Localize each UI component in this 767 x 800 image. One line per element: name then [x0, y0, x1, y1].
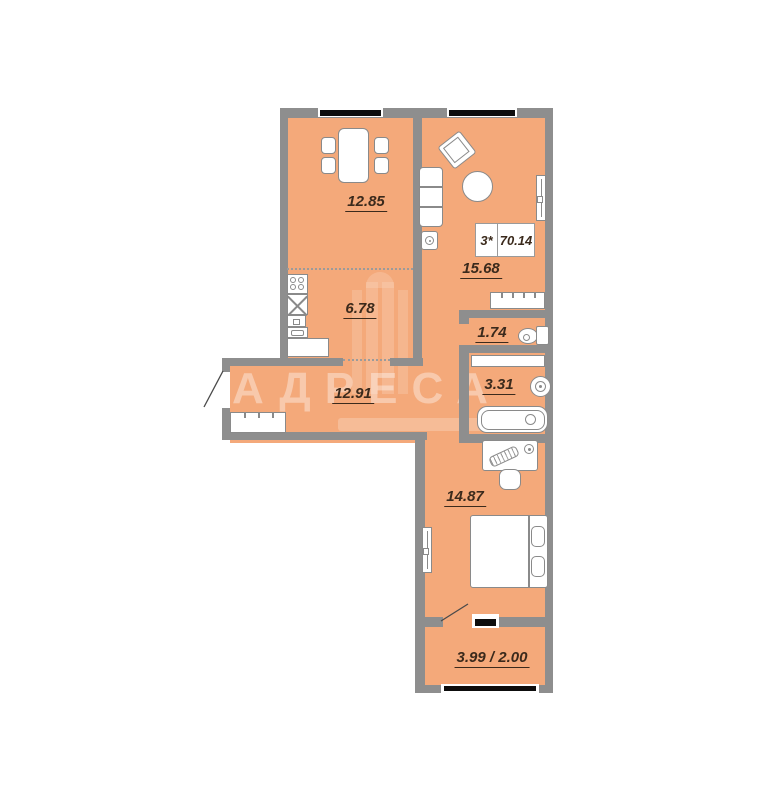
cabinet-icon	[490, 292, 545, 309]
dining-table-icon	[338, 128, 369, 183]
chair-icon	[321, 137, 336, 154]
room-area-label-living: 15.68	[460, 261, 502, 279]
pillow-icon	[531, 526, 545, 547]
oven-icon	[287, 315, 306, 327]
room-area-label-wc: 1.74	[475, 325, 508, 343]
chair-icon	[321, 157, 336, 174]
room-area-label-kitchen: 6.78	[343, 301, 376, 319]
wall-segment	[459, 310, 553, 318]
room-area-label-hall: 12.91	[332, 386, 374, 404]
wall-segment	[498, 617, 545, 627]
drawer-icon	[287, 327, 308, 338]
wall-segment	[459, 345, 545, 353]
wall-segment	[222, 358, 230, 372]
wall-segment	[459, 310, 469, 324]
kitchen-sink-icon	[287, 294, 308, 315]
room-area-label-balcony: 3.99 / 2.00	[455, 650, 530, 668]
shelf-icon	[471, 355, 545, 367]
rooms-count-label: 3*	[476, 224, 498, 256]
room-area-label-bath: 3.31	[482, 377, 515, 395]
wall-segment	[415, 627, 425, 693]
wall-segment	[222, 358, 343, 366]
radiator-icon	[536, 175, 546, 221]
dashed-opening	[343, 359, 390, 361]
window-glass-icon	[449, 110, 515, 116]
counter-icon	[287, 338, 329, 357]
pillow-icon	[531, 556, 545, 577]
chair-icon	[374, 137, 389, 154]
apartment-summary-box: 3* 70.14	[475, 223, 535, 257]
washbasin-icon	[530, 376, 551, 397]
speaker-icon	[421, 231, 438, 250]
desk-chair-icon	[499, 469, 521, 490]
keyboard-icon	[488, 445, 520, 468]
toilet-icon	[518, 328, 538, 344]
dashed-partition	[287, 268, 413, 270]
stove-icon	[287, 274, 308, 294]
watermark-subline	[338, 418, 498, 431]
radiator-icon	[422, 527, 432, 573]
wall-segment	[459, 348, 469, 443]
window-glass-icon	[444, 686, 536, 691]
sofa-icon	[419, 167, 443, 227]
entry-door-swing-icon	[204, 371, 223, 407]
floor-plan: АДРЕСА	[0, 0, 767, 800]
wall-segment	[222, 432, 427, 440]
desk-icon	[482, 440, 538, 471]
bed-icon	[470, 515, 548, 588]
window-glass-icon	[475, 619, 496, 626]
toilet-tank-icon	[536, 326, 549, 345]
total-area-label: 70.14	[498, 224, 534, 256]
chair-icon	[374, 157, 389, 174]
room-area-label-bedroom: 14.87	[444, 489, 486, 507]
bathtub-icon	[477, 406, 548, 433]
wall-segment	[415, 617, 443, 627]
wall-segment	[390, 358, 423, 366]
window-glass-icon	[320, 110, 381, 116]
coffee-table-icon	[462, 171, 493, 202]
room-area-label-dining: 12.85	[345, 194, 387, 212]
wardrobe-icon	[230, 412, 286, 433]
wall-segment	[545, 108, 553, 693]
